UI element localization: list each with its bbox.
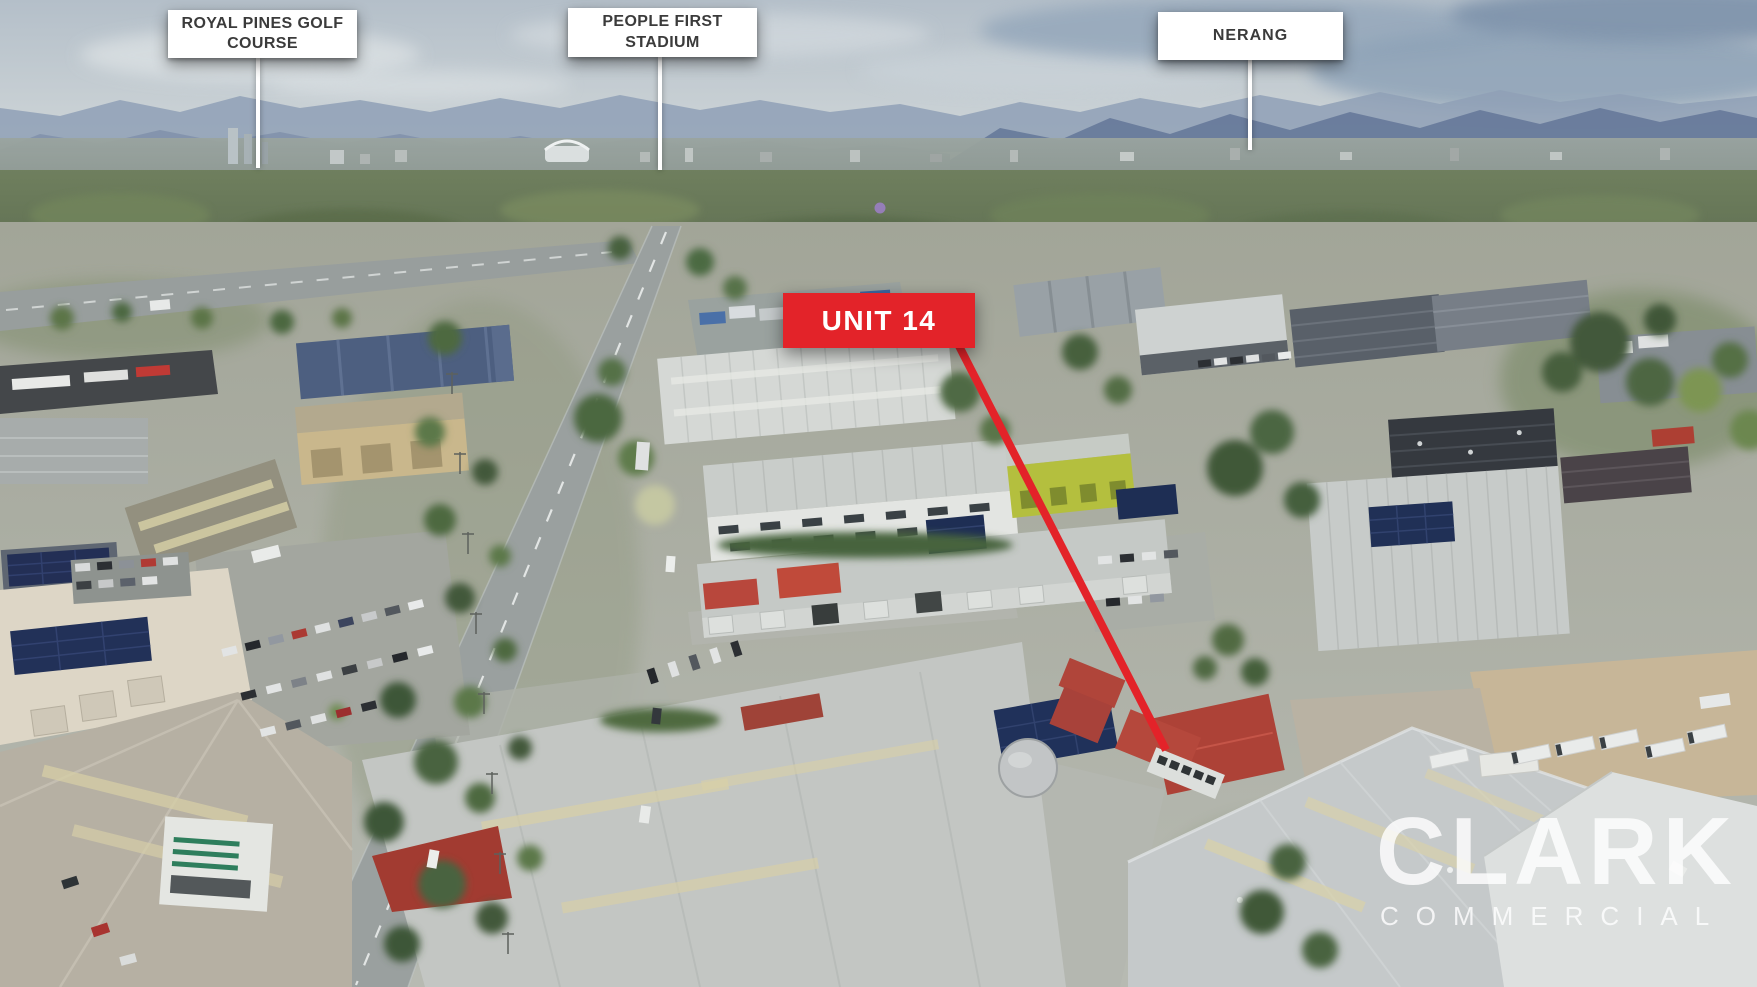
label-nerang: NERANG xyxy=(1158,12,1343,60)
clark-commercial-watermark: CLARK COMMERCIAL xyxy=(1376,804,1737,932)
leader-line-nerang xyxy=(1248,60,1252,150)
lime-green-building xyxy=(1005,433,1136,518)
leader-line-people-first-stadium xyxy=(658,57,662,170)
watermark-brand: CLARK xyxy=(1376,804,1737,900)
label-royal-pines-golf-course: ROYAL PINES GOLF COURSE xyxy=(168,10,357,58)
label-text: ROYAL PINES GOLF COURSE xyxy=(182,14,344,55)
watermark-tagline: COMMERCIAL xyxy=(1380,901,1737,932)
label-text: PEOPLE FIRST STADIUM xyxy=(582,12,744,53)
aerial-photo-page: ROYAL PINES GOLF COURSE PEOPLE FIRST STA… xyxy=(0,0,1757,987)
water-tank xyxy=(999,739,1057,797)
label-people-first-stadium: PEOPLE FIRST STADIUM xyxy=(568,8,757,57)
label-unit-14: UNIT 14 xyxy=(783,293,975,348)
label-text: NERANG xyxy=(1213,26,1288,46)
leader-line-royal-pines xyxy=(256,58,260,168)
